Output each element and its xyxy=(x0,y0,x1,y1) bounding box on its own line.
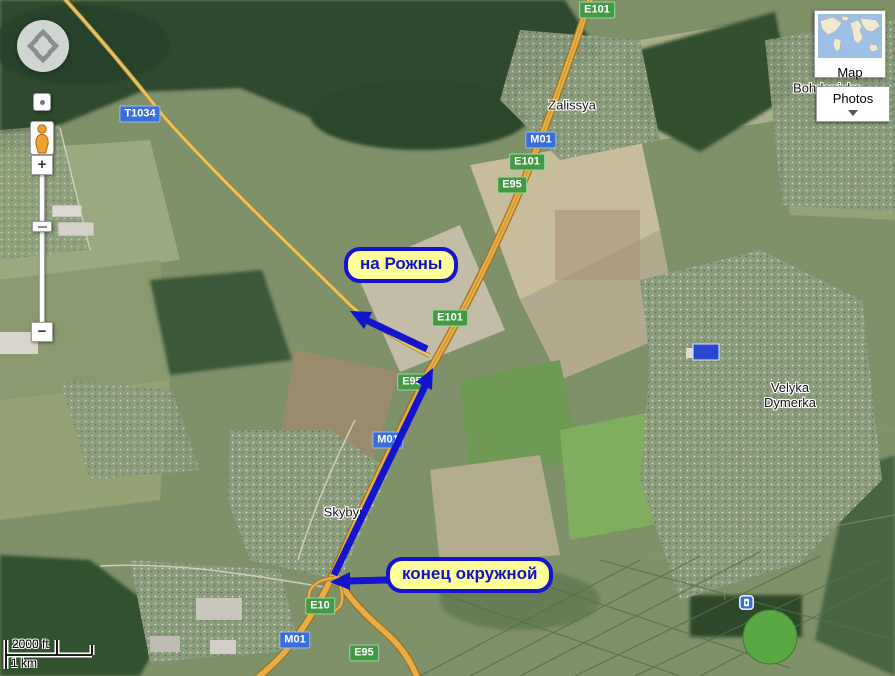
callout-ring-road-end: конец окружной xyxy=(386,557,553,593)
zoom-slider-handle[interactable] xyxy=(32,221,52,232)
pan-right-icon xyxy=(49,39,56,53)
recenter-button[interactable] xyxy=(33,93,51,111)
pegman-icon xyxy=(31,122,53,154)
road-badge-t1034: T1034 xyxy=(119,106,160,123)
road-badge-e95-bottom: E95 xyxy=(349,645,379,662)
place-label-skybyn: Skybyn xyxy=(324,505,367,520)
road-badge-e10: E10 xyxy=(305,598,335,615)
place-label-velyka-line2: Dymerka xyxy=(764,395,816,410)
dropdown-arrow-icon xyxy=(848,110,858,116)
pan-down-icon xyxy=(36,53,50,60)
zoom-in-button[interactable]: + xyxy=(31,155,53,175)
zoom-out-button[interactable]: − xyxy=(31,322,53,342)
road-badge-e101-top: E101 xyxy=(579,2,615,19)
place-label-zalissya: Zalissya xyxy=(548,98,596,113)
road-badge-e95-mid: E95 xyxy=(397,374,427,391)
center-dot-icon xyxy=(40,100,45,105)
transit-station-icon[interactable] xyxy=(739,595,754,610)
street-view-pegman-button[interactable] xyxy=(30,121,54,155)
slider-grip-icon xyxy=(38,226,47,228)
scale-metric-label: 1 km xyxy=(11,656,37,670)
world-map-thumbnail xyxy=(818,14,882,58)
map-view-button[interactable]: Map xyxy=(814,10,886,78)
place-label-velyka-dymerka: Velyka Dymerka xyxy=(764,380,816,410)
pan-control[interactable] xyxy=(17,20,69,72)
road-badge-m01-mid: M01 xyxy=(372,432,403,449)
photos-dropdown-button[interactable]: Photos xyxy=(816,86,890,122)
pan-up-icon xyxy=(36,32,50,39)
pan-left-icon xyxy=(30,39,37,53)
zoom-slider-track[interactable] xyxy=(39,174,45,324)
road-badge-e101-mid: E101 xyxy=(432,310,468,327)
road-badge-m01-bottom: M01 xyxy=(279,632,310,649)
road-badge-e95-upper: E95 xyxy=(497,177,527,194)
road-badge-m01-upper: M01 xyxy=(525,132,556,149)
pan-arrows xyxy=(17,20,69,72)
place-label-velyka-line1: Velyka xyxy=(771,380,809,395)
map-viewport[interactable]: E101 M01 E101 E95 T1034 E101 E95 M01 E10… xyxy=(0,0,895,676)
callout-to-rozhny: на Рожны xyxy=(344,247,458,283)
scale-imperial-label: 2000 ft xyxy=(12,637,49,651)
photos-button-label: Photos xyxy=(817,91,889,106)
road-badge-e101-upper: E101 xyxy=(509,154,545,171)
map-button-label: Map xyxy=(818,65,882,80)
